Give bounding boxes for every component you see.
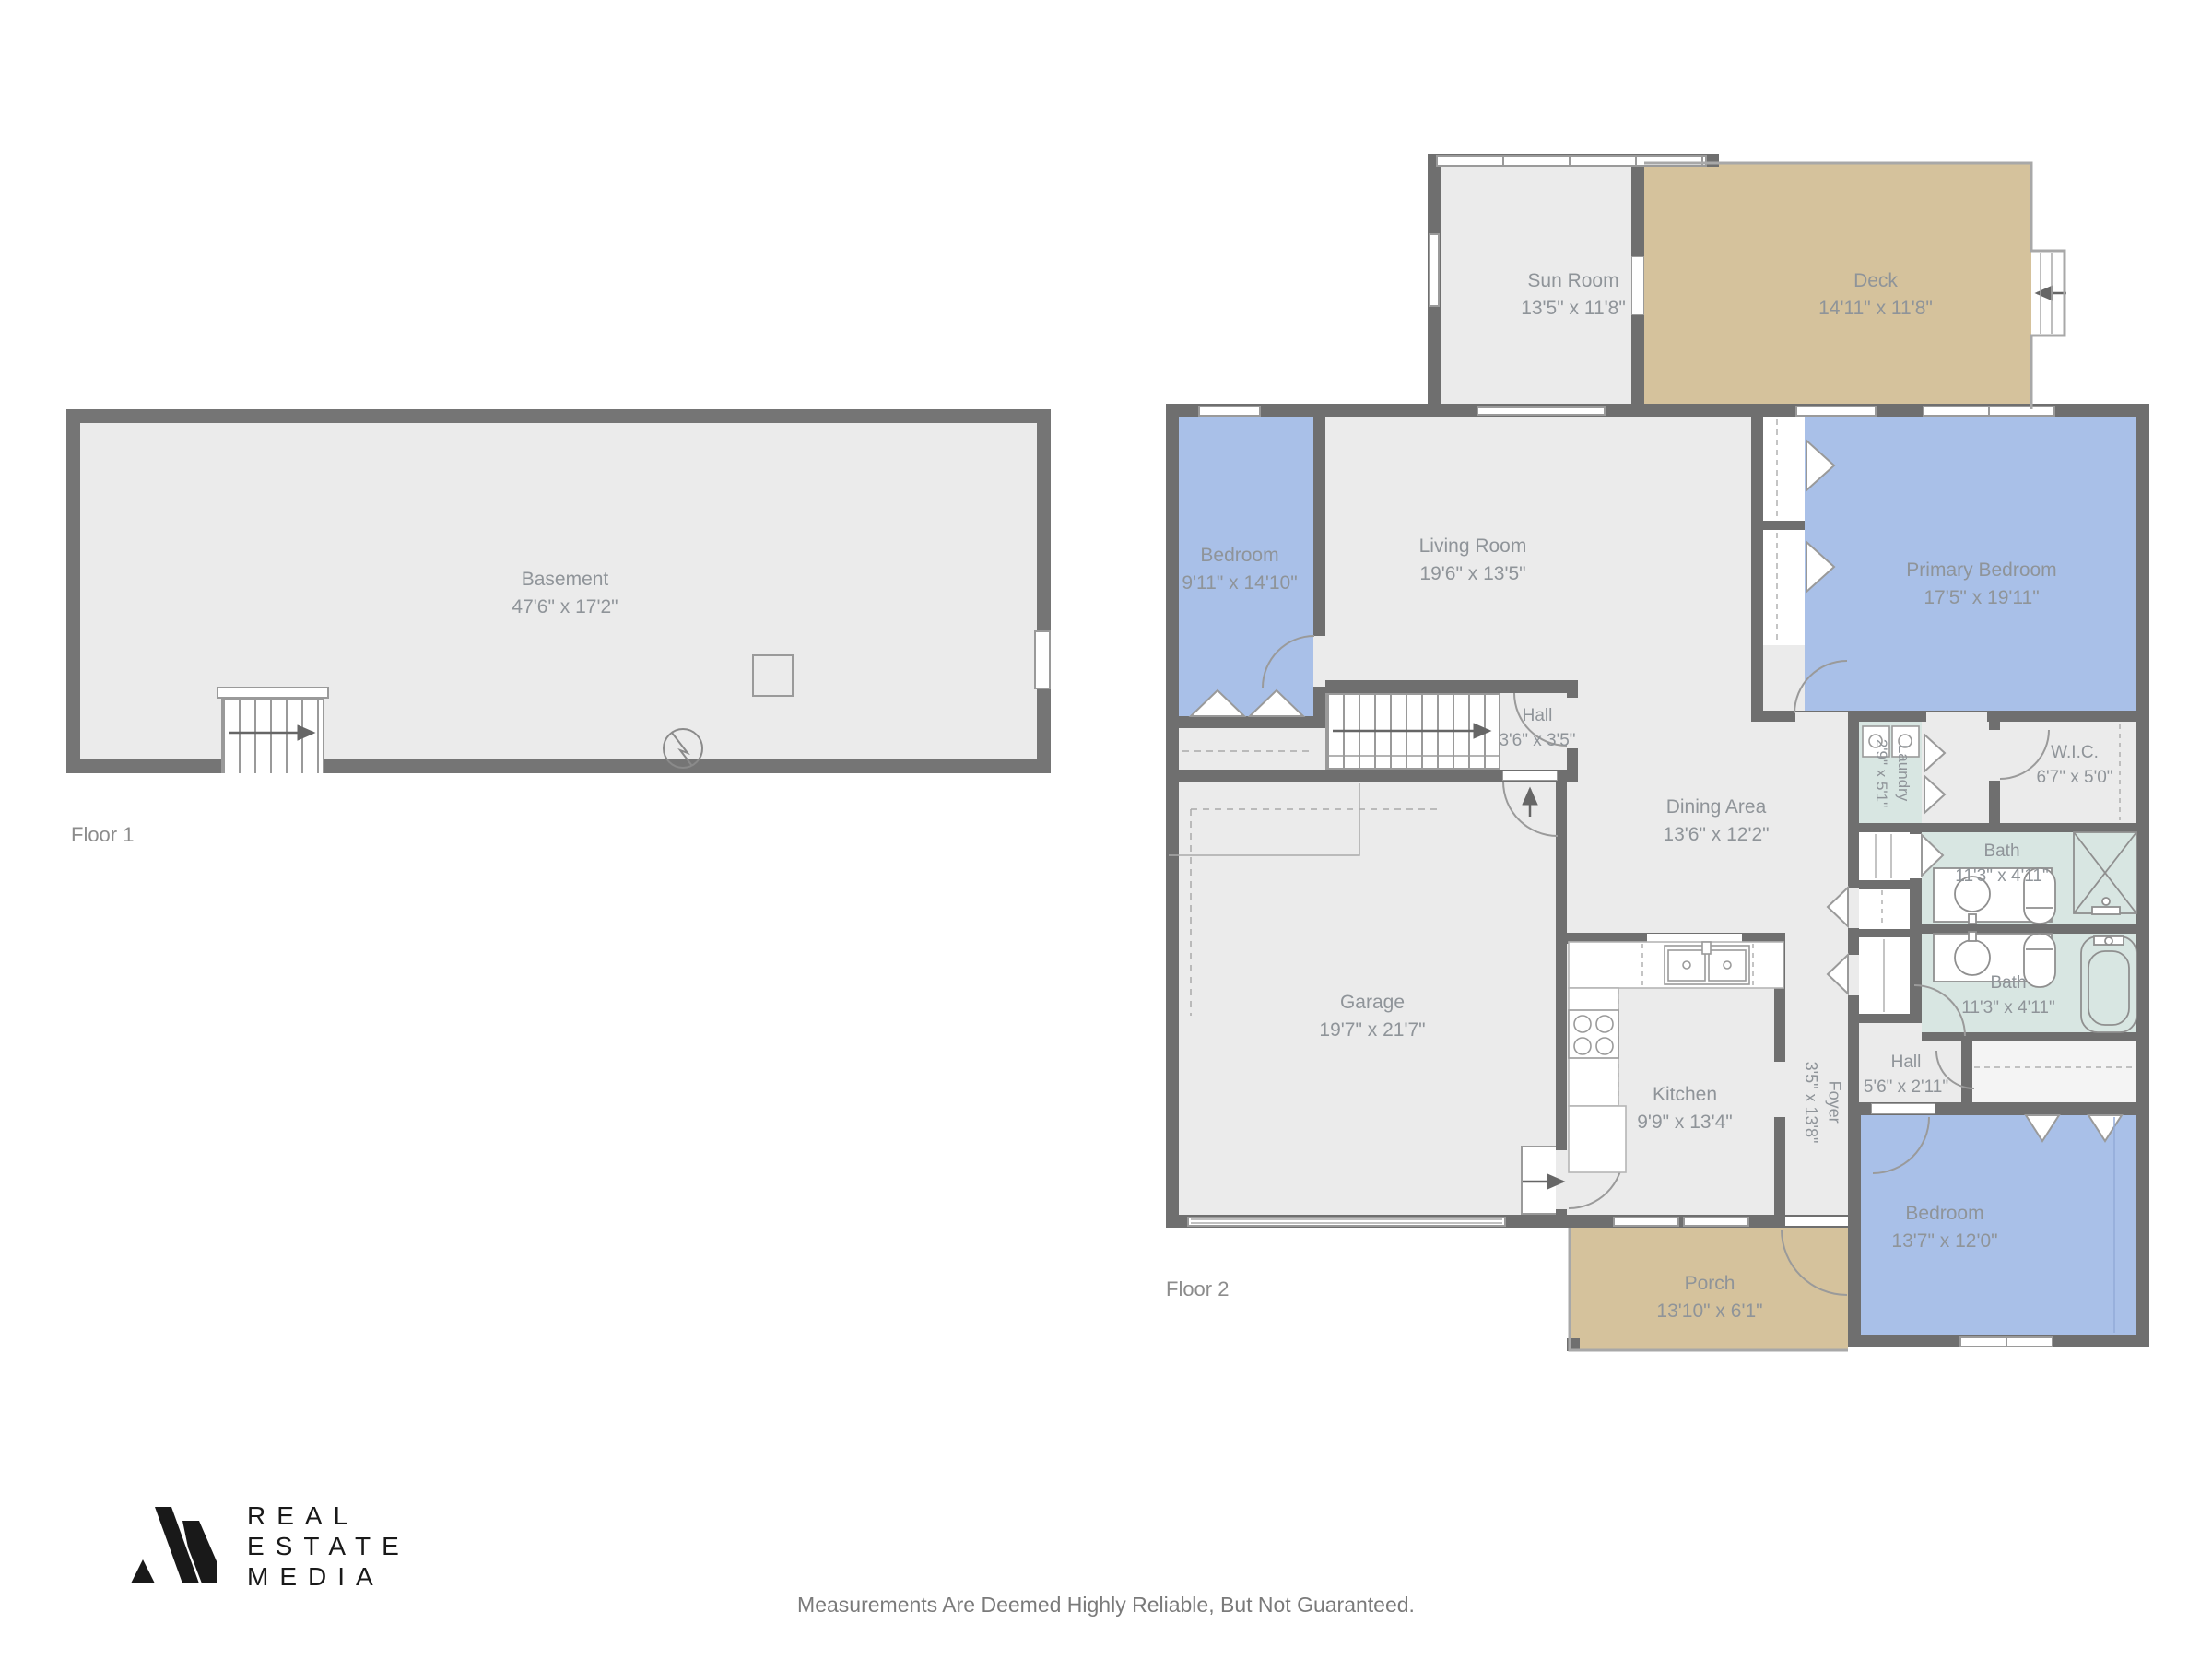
real-estate-media-logo-icon (129, 1502, 235, 1590)
sunroom-opening (1477, 406, 1606, 416)
bedroom-lower-window (1959, 1336, 2053, 1347)
living-room-window (1795, 406, 1877, 417)
basement-stairs (221, 698, 324, 773)
label-basement: Basement47'6" x 17'2" (512, 566, 618, 621)
label-living-room: Living Room19'6" x 13'5" (1419, 533, 1527, 588)
label-bath-b: Bath11'3" x 4'11" (1961, 971, 2054, 1021)
label-deck: Deck14'11" x 11'8" (1818, 267, 1933, 323)
disclaimer-text: Measurements Are Deemed Highly Reliable,… (0, 1593, 2212, 1618)
primary-closet-1 (1763, 417, 1805, 521)
label-foyer: Foyer3'5" x 13'8" (1798, 1062, 1845, 1144)
sunroom-window-band (1436, 155, 1707, 167)
floorplan-canvas: Basement47'6" x 17'2" Floor 1 Sun Room13… (0, 0, 2212, 1659)
label-dining-area: Dining Area13'6" x 12'2" (1663, 794, 1769, 849)
label-garage: Garage19'7" x 21'7" (1319, 989, 1425, 1044)
real-estate-media-logo-text: REAL ESTATE MEDIA (247, 1500, 410, 1592)
hall-closet-c (1859, 937, 1910, 1014)
label-floor2: Floor 2 (1166, 1277, 1229, 1301)
label-floor1: Floor 1 (71, 823, 134, 847)
basement-window (1034, 630, 1051, 689)
label-primary-bedroom: Primary Bedroom17'5" x 19'11" (1906, 557, 2056, 612)
label-sun-room: Sun Room13'5" x 11'8" (1521, 267, 1626, 323)
basement-stairs-landing (217, 687, 329, 699)
floor2-stairs (1325, 693, 1500, 770)
label-wic: W.I.C.6'7" x 5'0" (2036, 741, 2112, 791)
bedroom-upper-window (1198, 406, 1261, 417)
hall-closet-b (1859, 889, 1910, 929)
label-porch: Porch13'10" x 6'1" (1656, 1270, 1762, 1325)
label-hall-upper: Hall3'6" x 3'5" (1499, 704, 1575, 754)
label-bath-a: Bath11'3" x 4'11" (1955, 840, 2048, 889)
water-heater-symbol (752, 654, 794, 697)
primary-closet-2 (1763, 530, 1805, 645)
label-hall-lower: Hall5'6" x 2'11" (1864, 1051, 1948, 1100)
primary-bedroom-window (1923, 406, 2055, 417)
porch-window-1 (1613, 1217, 1679, 1227)
porch-window-2 (1683, 1217, 1749, 1227)
hall-closet-a (1859, 832, 1910, 880)
label-bedroom-upper: Bedroom9'11" x 14'10" (1182, 542, 1297, 597)
sunroom-left-window (1429, 233, 1440, 307)
label-bedroom-lower: Bedroom13'7" x 12'0" (1891, 1200, 1997, 1255)
garage-door-band (1187, 1217, 1506, 1227)
deck-stairs (2041, 253, 2052, 334)
bedroom-lower-closet (1972, 1040, 2136, 1102)
label-laundry: Laundry2'9" x 5'1" (1870, 739, 1914, 807)
label-kitchen: Kitchen9'9" x 13'4" (1637, 1081, 1733, 1136)
